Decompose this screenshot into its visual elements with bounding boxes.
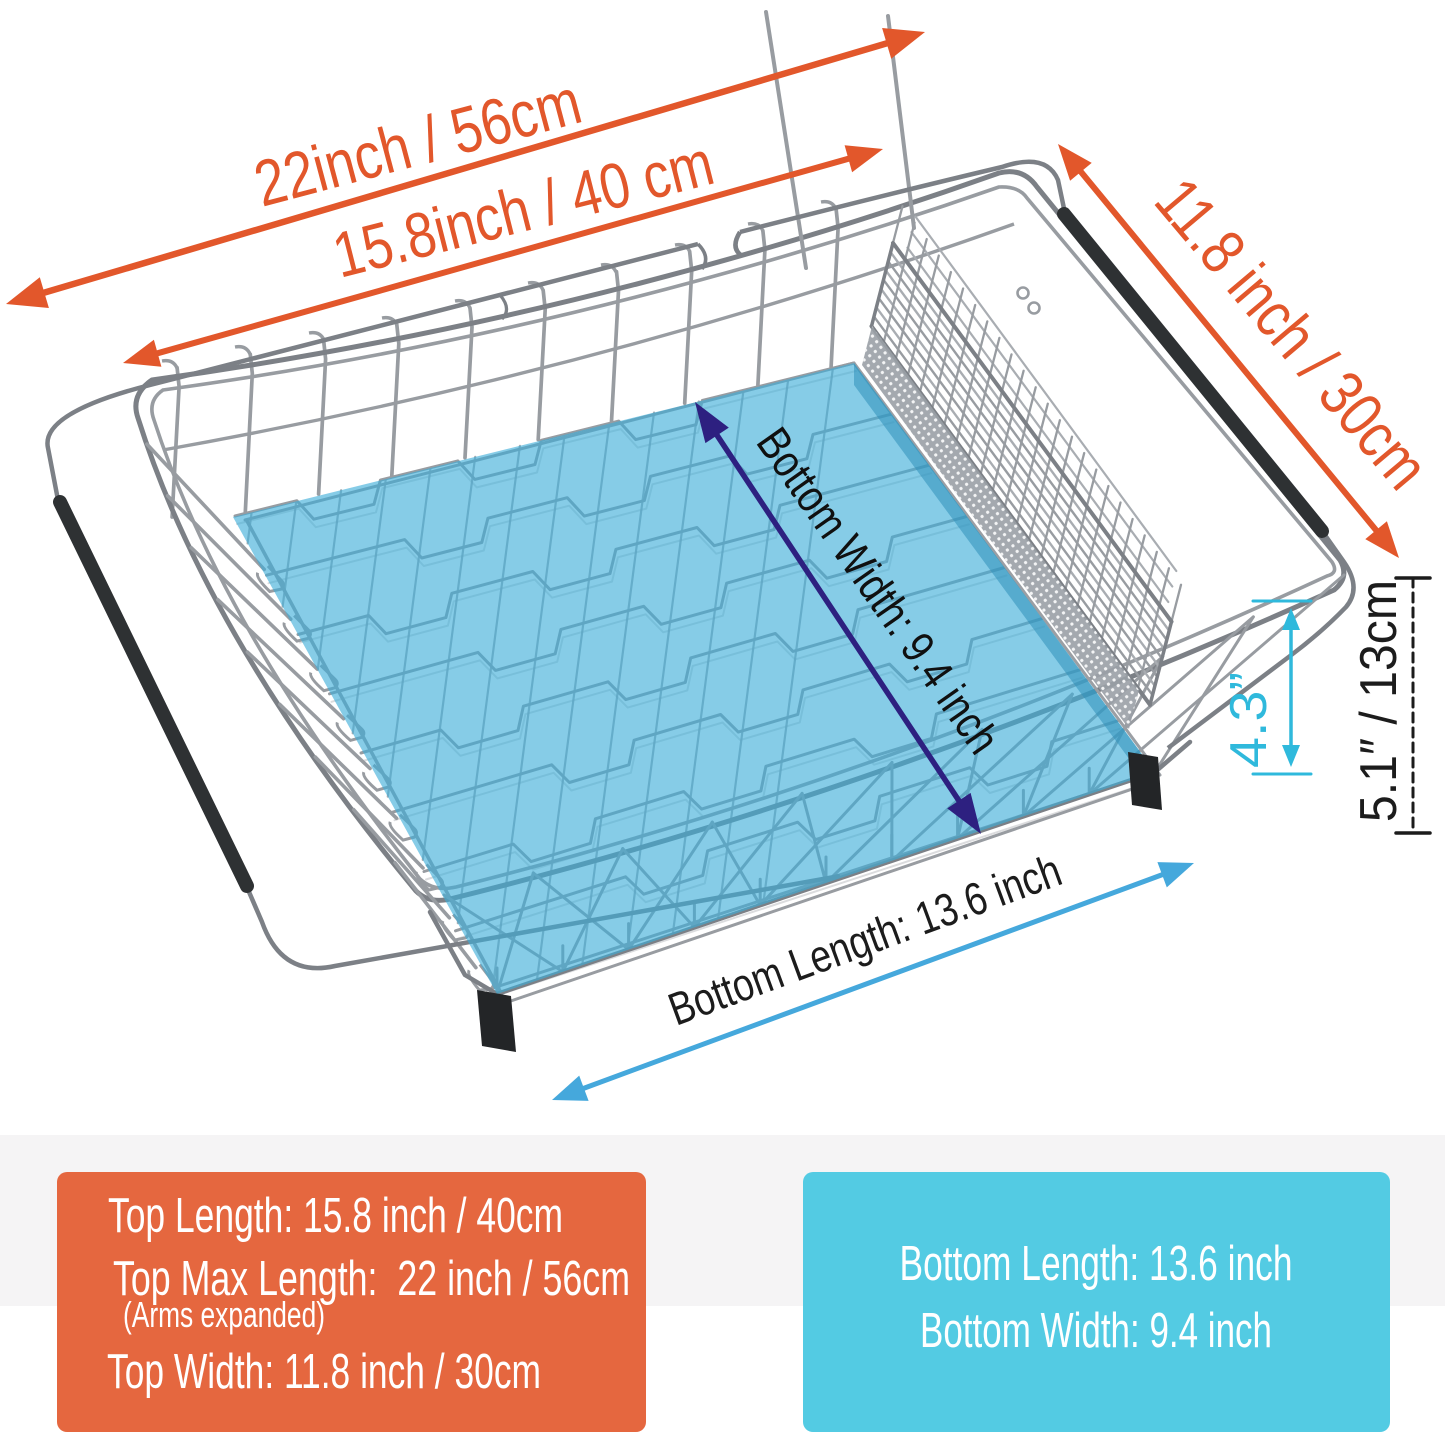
svg-text:Bottom Width: 9.4 inch: Bottom Width: 9.4 inch xyxy=(920,1304,1272,1358)
svg-text:5.1″ / 13cm: 5.1″ / 13cm xyxy=(1350,580,1408,822)
svg-text:Top Length: 15.8 inch / 40cm: Top Length: 15.8 inch / 40cm xyxy=(108,1189,563,1243)
svg-text:Top Width: 11.8 inch / 30cm: Top Width: 11.8 inch / 30cm xyxy=(107,1345,541,1399)
svg-text:(Arms expanded): (Arms expanded) xyxy=(123,1294,325,1335)
svg-text:Bottom Length: 13.6 inch: Bottom Length: 13.6 inch xyxy=(900,1237,1293,1291)
svg-text:4.3”: 4.3” xyxy=(1220,672,1278,768)
